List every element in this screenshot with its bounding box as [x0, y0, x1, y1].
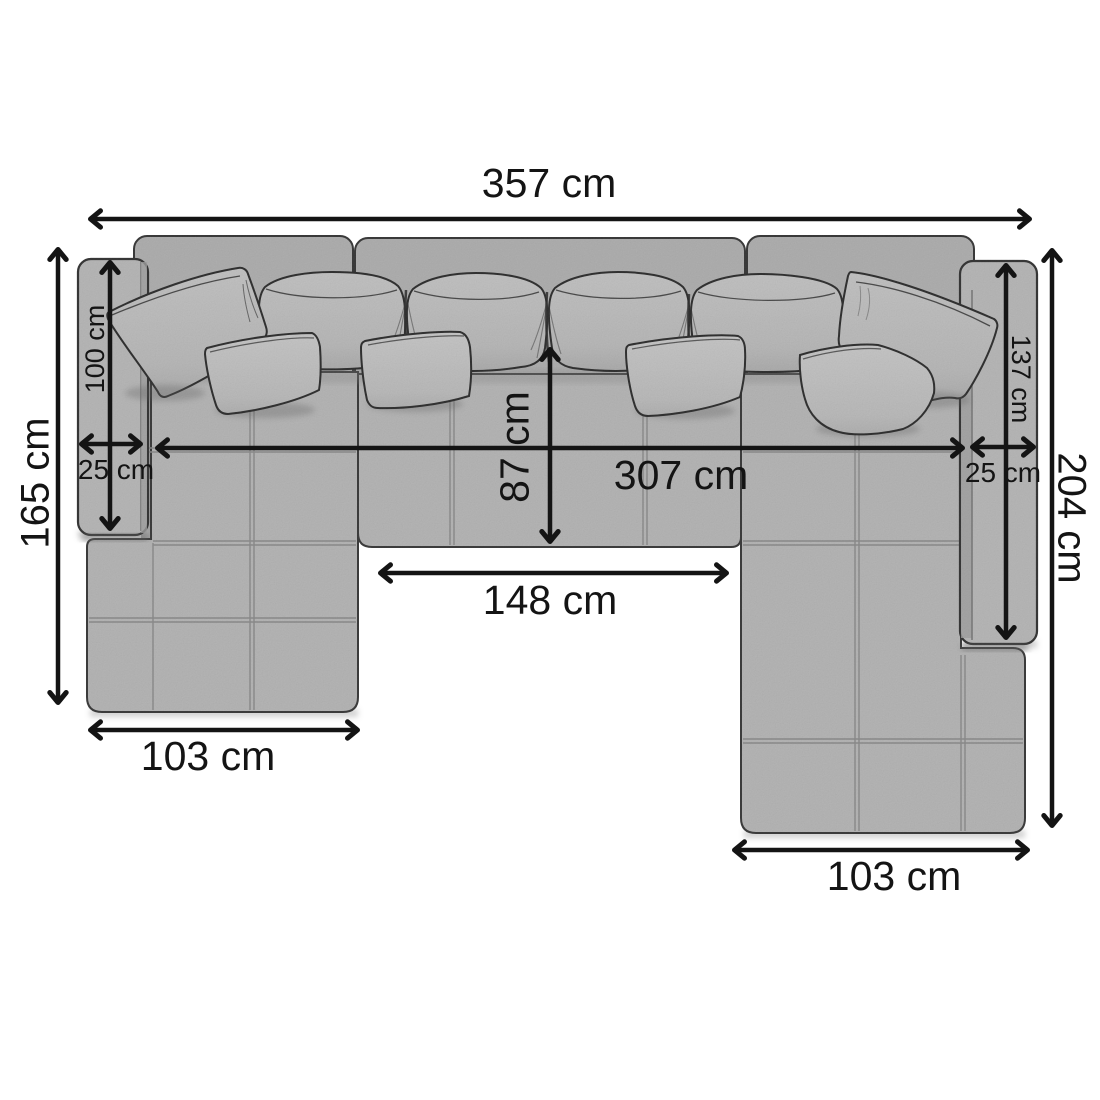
- svg-text:25 cm: 25 cm: [78, 454, 154, 485]
- svg-text:165 cm: 165 cm: [14, 417, 58, 548]
- svg-text:148 cm: 148 cm: [483, 577, 617, 623]
- svg-text:25 cm: 25 cm: [965, 457, 1041, 488]
- svg-text:87 cm: 87 cm: [492, 391, 538, 503]
- svg-text:204 cm: 204 cm: [1050, 452, 1094, 583]
- svg-text:103 cm: 103 cm: [827, 853, 961, 899]
- svg-text:100 cm: 100 cm: [80, 305, 110, 394]
- svg-text:103 cm: 103 cm: [141, 733, 275, 779]
- svg-text:307 cm: 307 cm: [614, 452, 748, 498]
- svg-text:357 cm: 357 cm: [482, 160, 616, 206]
- svg-text:137 cm: 137 cm: [1006, 335, 1036, 424]
